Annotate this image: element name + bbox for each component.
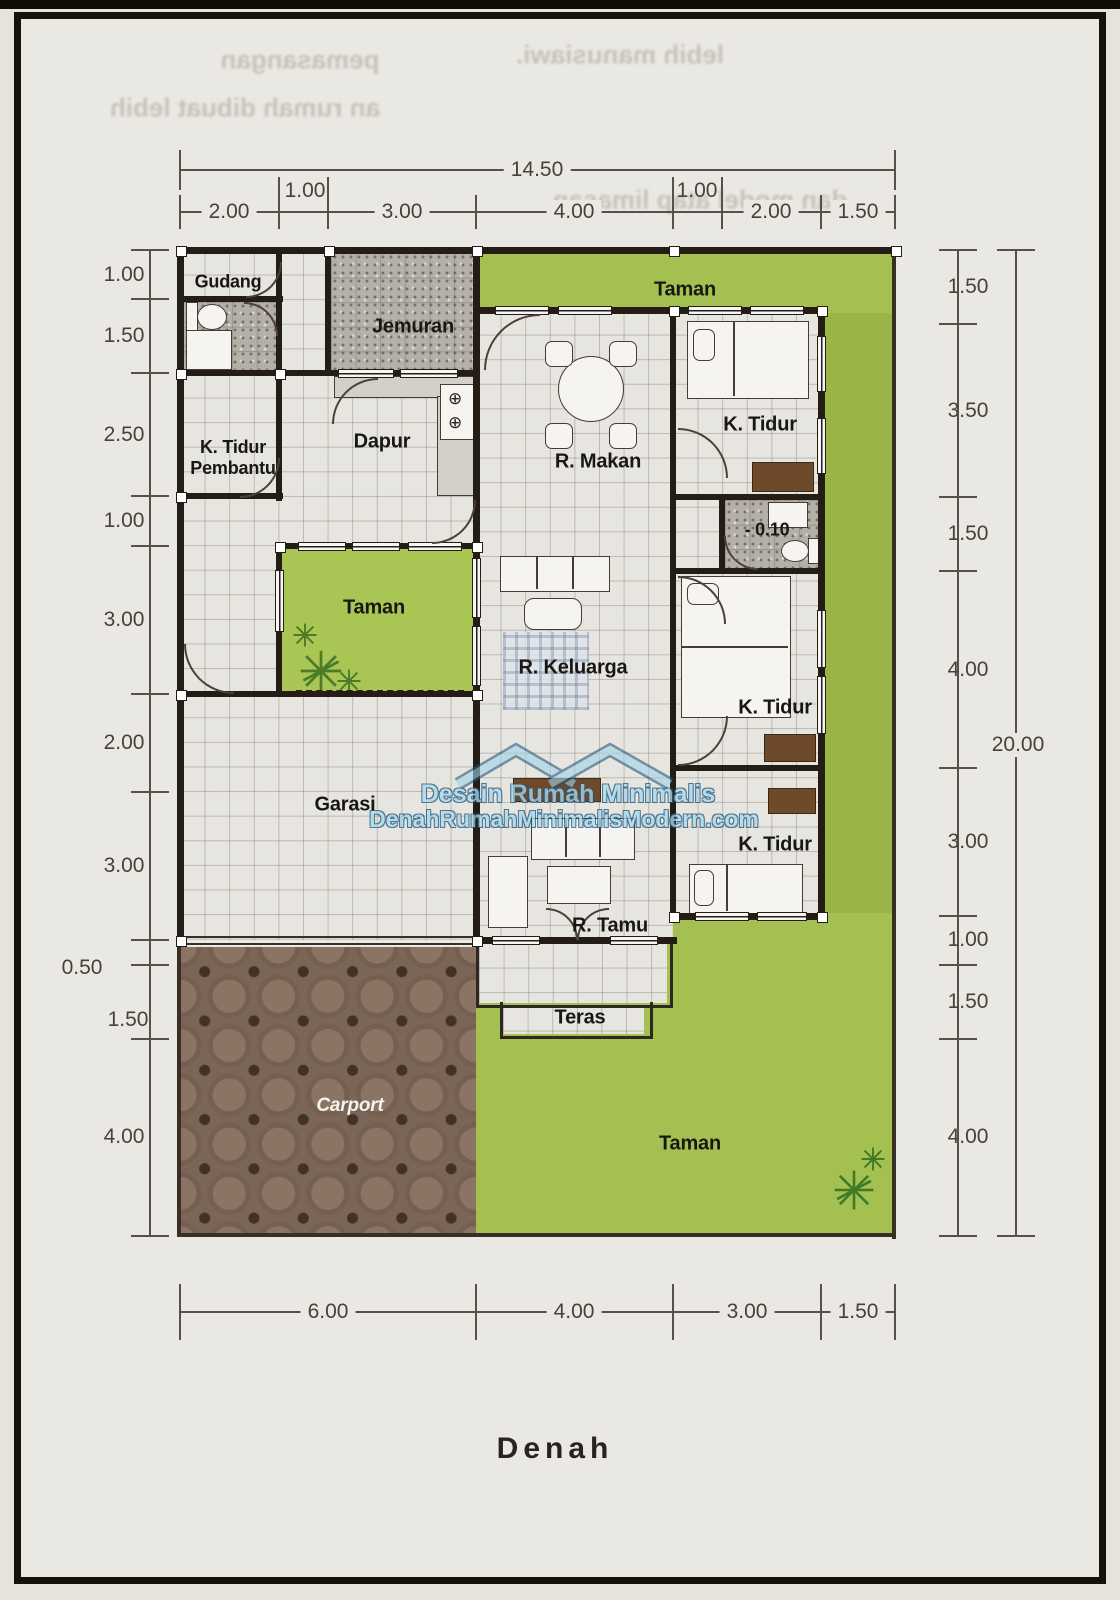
- sofa-line: [536, 557, 538, 589]
- stove-burner-icon: ⊕: [448, 390, 462, 407]
- dim-tick: [939, 915, 977, 917]
- dim-label: 1.00: [104, 509, 145, 533]
- dim-tick: [939, 1235, 977, 1237]
- column-marker: [324, 246, 335, 257]
- drawing-title: Denah: [497, 1432, 614, 1466]
- dim-label: 4.00: [948, 1125, 989, 1149]
- dim-tick: [179, 150, 181, 190]
- room-label-jemuran: Jemuran: [372, 316, 454, 339]
- dim-tick: [939, 964, 977, 966]
- window-sill-dashed: [296, 690, 464, 692]
- dim-label: 1.50: [831, 1300, 886, 1324]
- window: [298, 542, 346, 551]
- room-label-r-keluarga: R. Keluarga: [519, 657, 628, 680]
- property-edge: [177, 940, 181, 1237]
- dim-label: 4.00: [547, 200, 602, 224]
- dim-label: 3.00: [375, 200, 430, 224]
- dim-tick: [820, 1284, 822, 1340]
- dim-label: 2.00: [744, 200, 799, 224]
- tree-icon: [860, 1146, 886, 1172]
- dim-label: 3.00: [104, 608, 145, 632]
- dim-tick: [131, 1038, 169, 1040]
- coffee-table: [524, 598, 582, 630]
- dim-label: 4.00: [547, 1300, 602, 1324]
- level-label-bathroom: - 0.10: [745, 520, 790, 541]
- wardrobe: [752, 462, 814, 492]
- room-label-taman-bottom: Taman: [659, 1133, 721, 1156]
- dim-tick: [939, 1038, 977, 1040]
- dim-tick: [672, 177, 674, 229]
- ghost-text: an rumah dibuat lebih: [110, 93, 380, 124]
- dim-tick: [894, 195, 896, 229]
- dim-label: 1.50: [948, 522, 989, 546]
- room-label-taman-inner: Taman: [343, 597, 405, 620]
- window: [352, 542, 400, 551]
- water-basin: [186, 330, 232, 370]
- dim-tick: [179, 195, 181, 229]
- dim-label: 2.00: [202, 200, 257, 224]
- room-label-taman-top: Taman: [654, 279, 716, 302]
- dim-tick: [939, 323, 977, 325]
- column-marker: [669, 246, 680, 257]
- column-marker: [669, 912, 680, 923]
- dim-tick: [939, 767, 977, 769]
- column-marker: [891, 246, 902, 257]
- wall: [670, 494, 825, 500]
- scanned-floor-plan-page: pemasangan lebih manusiawi. an rumah dib…: [0, 0, 1120, 1600]
- window: [817, 336, 826, 392]
- column-marker: [176, 246, 187, 257]
- property-edge: [892, 247, 896, 1239]
- room-label-gudang: Gudang: [195, 272, 262, 293]
- column-marker: [472, 246, 483, 257]
- dim-label: 2.50: [104, 423, 145, 447]
- watermark-brand: Desain Rumah Minimalis: [421, 780, 716, 809]
- wall: [670, 765, 825, 771]
- wall: [177, 493, 283, 499]
- tree-icon: [292, 622, 318, 648]
- window: [275, 570, 284, 632]
- dim-label: 3.50: [948, 399, 989, 423]
- column-marker: [817, 306, 828, 317]
- dim-tick: [131, 545, 169, 547]
- window: [817, 610, 826, 668]
- dim-tick: [894, 150, 896, 190]
- pillow: [693, 329, 715, 361]
- dining-chair: [545, 341, 573, 367]
- dim-tick: [179, 1284, 181, 1340]
- dim-label: 4.00: [948, 658, 989, 682]
- wardrobe: [764, 734, 816, 762]
- room-label-r-tamu: R. Tamu: [572, 915, 648, 938]
- window: [688, 306, 742, 315]
- dining-chair: [545, 423, 573, 449]
- window: [492, 936, 540, 945]
- bed-line: [733, 322, 735, 396]
- dim-tick: [997, 1235, 1035, 1237]
- window: [495, 306, 549, 315]
- property-edge: [177, 1233, 896, 1237]
- dim-label: 3.00: [720, 1300, 775, 1324]
- room-label-k-tidur-1: K. Tidur: [723, 414, 797, 437]
- dim-tick: [327, 177, 329, 229]
- garden-side-strip: [825, 313, 892, 913]
- dim-tick: [131, 1235, 169, 1237]
- dim-label-top-total: 14.50: [504, 158, 571, 182]
- column-marker: [472, 542, 483, 553]
- column-marker: [176, 690, 187, 701]
- window: [750, 306, 804, 315]
- window: [338, 369, 394, 378]
- dim-label: 1.00: [948, 928, 989, 952]
- window: [817, 676, 826, 734]
- window: [400, 369, 458, 378]
- window: [757, 912, 807, 921]
- room-label-k-tidur-3: K. Tidur: [738, 834, 812, 857]
- dim-label: 1.00: [285, 179, 326, 203]
- dim-tick: [131, 372, 169, 374]
- window: [558, 306, 612, 315]
- dim-label: 1.50: [104, 324, 145, 348]
- wall: [177, 247, 898, 254]
- dim-tick: [997, 249, 1035, 251]
- sofa: [500, 556, 610, 592]
- dining-chair: [609, 423, 637, 449]
- dim-label: 1.00: [104, 263, 145, 287]
- dim-label: 2.00: [104, 731, 145, 755]
- window: [817, 418, 826, 474]
- dim-tick: [131, 964, 169, 966]
- armchair: [488, 856, 528, 928]
- window: [472, 558, 481, 618]
- pillow: [694, 870, 714, 906]
- watermark-site: DenahRumahMinimalisModern.com: [369, 806, 759, 833]
- column-marker: [472, 690, 483, 701]
- dim-tick: [939, 249, 977, 251]
- dim-tick: [672, 1284, 674, 1340]
- room-label-dapur: Dapur: [354, 431, 411, 454]
- dim-tick: [820, 195, 822, 229]
- room-label-garasi: Garasi: [314, 794, 375, 817]
- wall: [719, 494, 725, 574]
- coffee-table: [547, 866, 611, 904]
- dim-tick: [131, 495, 169, 497]
- dim-label: 3.00: [104, 854, 145, 878]
- column-marker: [176, 492, 187, 503]
- garage-door-line: [181, 936, 474, 938]
- dim-tick: [939, 570, 977, 572]
- dim-tick: [721, 177, 723, 229]
- dim-tick: [131, 693, 169, 695]
- column-marker: [275, 369, 286, 380]
- wall: [177, 247, 184, 944]
- dim-tick: [131, 298, 169, 300]
- dim-tick: [894, 1284, 896, 1340]
- window: [472, 626, 481, 686]
- dim-tick: [131, 791, 169, 793]
- floor-jemuran: [331, 253, 473, 370]
- stove-burner-icon: ⊕: [448, 414, 462, 431]
- dim-tick: [278, 177, 280, 229]
- teras-outline: [476, 940, 673, 1008]
- dim-tick: [475, 1284, 477, 1340]
- dim-line: [149, 250, 151, 1236]
- sofa-line: [572, 557, 574, 589]
- room-label-k-tidur-pembantu: K. Tidur Pembantu: [190, 437, 275, 479]
- dim-label: 1.50: [948, 990, 989, 1014]
- dim-tick: [131, 939, 169, 941]
- room-label-teras: Teras: [555, 1007, 606, 1030]
- bed-line: [726, 865, 728, 911]
- dim-label: 1.50: [831, 200, 886, 224]
- dim-label: 1.50: [108, 1008, 149, 1032]
- dim-line: [957, 250, 959, 1236]
- bed-line: [682, 646, 788, 648]
- wall: [670, 568, 825, 574]
- wardrobe: [768, 788, 816, 814]
- wall: [325, 247, 331, 376]
- garage-door-line: [181, 943, 474, 945]
- tree-icon: [832, 1168, 876, 1212]
- column-marker: [817, 912, 828, 923]
- column-marker: [472, 936, 483, 947]
- room-label-carport: Carport: [316, 1095, 383, 1117]
- scan-edge: [0, 0, 1120, 9]
- dim-label: 0.50: [62, 956, 103, 980]
- dim-tick: [131, 249, 169, 251]
- floor-carport: [180, 947, 476, 1236]
- dining-chair: [609, 341, 637, 367]
- dim-line: [180, 1311, 895, 1313]
- dim-label: 6.00: [301, 1300, 356, 1324]
- dim-label: 1.00: [677, 179, 718, 203]
- column-marker: [275, 542, 286, 553]
- wall: [177, 296, 283, 302]
- toilet-bowl: [781, 540, 809, 562]
- column-marker: [669, 306, 680, 317]
- ghost-text: pemasangan: [221, 45, 380, 76]
- dim-tick: [939, 496, 977, 498]
- room-label-k-tidur-2: K. Tidur: [738, 697, 812, 720]
- dim-label: 4.00: [104, 1125, 145, 1149]
- dim-label: 3.00: [948, 830, 989, 854]
- dim-label-right-total: 20.00: [985, 733, 1052, 757]
- window: [695, 912, 749, 921]
- ghost-text: lebih manusiawi.: [516, 40, 724, 71]
- column-marker: [176, 369, 187, 380]
- column-marker: [176, 936, 187, 947]
- room-label-r-makan: R. Makan: [555, 451, 641, 474]
- toilet-bowl: [197, 304, 227, 330]
- dim-label: 1.50: [948, 275, 989, 299]
- dim-tick: [475, 195, 477, 229]
